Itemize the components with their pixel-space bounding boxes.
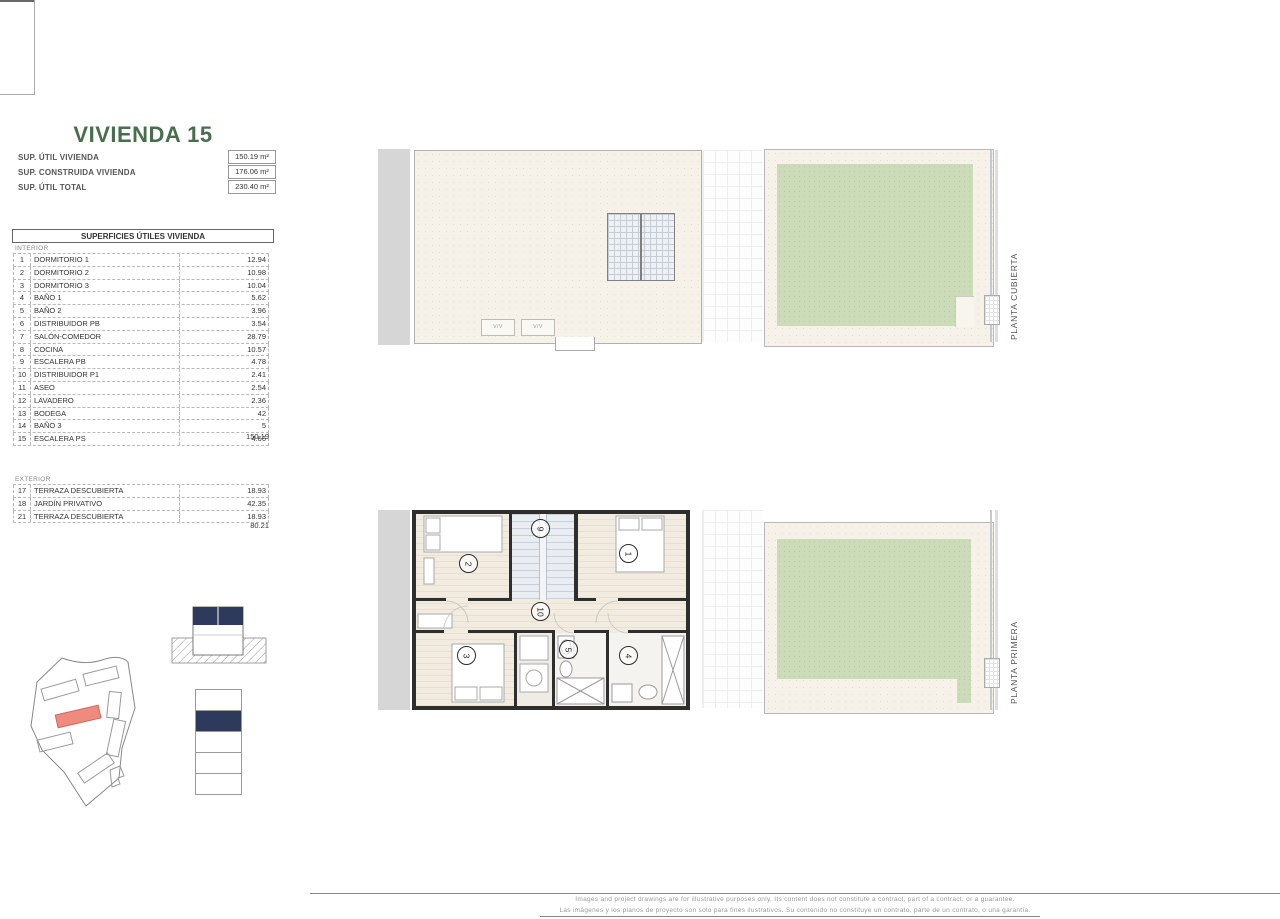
table-cell: 13 xyxy=(14,408,31,420)
table-row: 17TERRAZA DESCUBIERTA18.93 xyxy=(13,485,269,498)
neighbour-strip xyxy=(378,510,410,710)
table-cell: 2 xyxy=(14,267,31,279)
wardrobe xyxy=(424,558,434,584)
table-cell: 28.79 xyxy=(179,331,268,343)
table-row: 1DORMITORIO 112.94 xyxy=(13,254,269,267)
table-cell: 12.94 xyxy=(179,254,268,266)
garden-area xyxy=(764,149,994,347)
table-cell: 14 xyxy=(14,420,31,432)
roof-notch xyxy=(555,337,595,351)
table-row: 5BAÑO 23.96 xyxy=(13,305,269,318)
table-cell: BODEGA xyxy=(31,408,179,420)
table-cell: BAÑO 2 xyxy=(31,305,179,317)
room-circle-bath2: 5 xyxy=(559,640,578,659)
washer xyxy=(520,664,548,692)
table-cell: 5.62 xyxy=(179,292,268,304)
neighbour-strip xyxy=(378,149,410,345)
summary-label-util-total: SUP. ÚTIL TOTAL xyxy=(18,183,87,192)
table-cell: DORMITORIO 3 xyxy=(31,280,179,292)
table-row: 11ASEO2.54 xyxy=(13,382,269,395)
table-cell: BAÑO 1 xyxy=(31,292,179,304)
summary-value-util-total: 230.40 m² xyxy=(228,180,276,194)
boundary-detail xyxy=(984,295,1000,325)
table-cell: 17 xyxy=(14,485,31,497)
table-cell: LAVADERO xyxy=(31,395,179,407)
room-circle-dorm2: 2 xyxy=(459,554,478,573)
summary-value-construida: 176.06 m² xyxy=(228,165,276,179)
site-location-plan xyxy=(22,650,140,812)
exterior-section-label: EXTERIOR xyxy=(15,476,51,483)
table-row: 6DISTRIBUIDOR PB3.54 xyxy=(13,318,269,331)
table-cell: ASEO xyxy=(31,382,179,394)
table-cell: 2.41 xyxy=(179,369,268,381)
page-title: VIVIENDA 15 xyxy=(12,122,274,148)
table-cell: 5 xyxy=(14,305,31,317)
garden-lawn xyxy=(777,539,971,679)
corner-mark xyxy=(0,0,35,2)
table-cell: 1 xyxy=(14,254,31,266)
garden-lawn-extension xyxy=(957,677,971,703)
table-cell: 3.96 xyxy=(179,305,268,317)
skylight-divider xyxy=(640,214,642,280)
vent-marker: V/V xyxy=(521,319,555,336)
level-cell xyxy=(195,689,242,711)
table-cell: DISTRIBUIDOR PB xyxy=(31,318,179,330)
summary-label-construida: SUP. CONSTRUIDA VIVIENDA xyxy=(18,168,136,177)
roof-plan: V/V V/V xyxy=(378,147,1006,347)
table-cell: 11 xyxy=(14,382,31,394)
plan-sheet: VIVIENDA 15 SUP. ÚTIL VIVIENDA 150.19 m²… xyxy=(0,0,1280,919)
table-row: 10DISTRIBUIDOR P12.41 xyxy=(13,369,269,382)
roof-surface: V/V V/V xyxy=(414,150,702,344)
vent-marker: V/V xyxy=(481,319,515,336)
table-cell: 4 xyxy=(14,292,31,304)
toilet-bath2 xyxy=(560,661,572,677)
table-cell: 12 xyxy=(14,395,31,407)
disclaimer-en: Images and project drawings are for illu… xyxy=(310,896,1280,903)
table-row: 13BODEGA42 xyxy=(13,408,269,421)
exterior-total: 80.21 xyxy=(13,521,271,530)
footer-rule-2 xyxy=(540,916,1040,917)
toilet-bath1 xyxy=(639,685,657,699)
table-cell: SALÓN-COMEDOR xyxy=(31,331,179,343)
skylight xyxy=(607,213,675,281)
table-cell: 18.93 xyxy=(179,485,268,497)
table-cell: 18 xyxy=(14,498,31,510)
shelf xyxy=(520,636,548,660)
table-row: 9ESCALERA PB4.78 xyxy=(13,356,269,369)
building-section-diagram xyxy=(150,598,275,668)
table-cell: 8 xyxy=(14,344,31,356)
first-floor-plan: 1 2 3 4 5 9 10 xyxy=(378,508,1006,713)
level-cell-active xyxy=(195,710,242,732)
table-row: 12LAVADERO2.36 xyxy=(13,395,269,408)
table-row: 3DORMITORIO 310.04 xyxy=(13,280,269,293)
table-cell: 10 xyxy=(14,369,31,381)
table-cell: 42 xyxy=(179,408,268,420)
boundary-detail xyxy=(984,658,1000,688)
room-circle-dorm1: 1 xyxy=(619,544,638,563)
terrace-paving xyxy=(702,150,763,342)
exterior-areas-table: 17TERRAZA DESCUBIERTA18.9318JARDÍN PRIVA… xyxy=(13,484,269,523)
interior-section-label: INTERIOR xyxy=(15,245,48,252)
table-cell: 10.04 xyxy=(179,280,268,292)
terrace-paving xyxy=(702,510,763,708)
roof-plan-label: PLANTA CUBIERTA xyxy=(1009,253,1019,340)
furniture-layer xyxy=(416,514,686,706)
table-cell: 3 xyxy=(14,280,31,292)
table-row: 7SALÓN-COMEDOR28.79 xyxy=(13,331,269,344)
first-floor-plan-label: PLANTA PRIMERA xyxy=(1009,621,1019,704)
table-cell: DORMITORIO 1 xyxy=(31,254,179,266)
table-row: 4BAÑO 15.62 xyxy=(13,292,269,305)
table-cell: 7 xyxy=(14,331,31,343)
room-circle-hall: 10 xyxy=(531,602,550,621)
table-cell: 4.78 xyxy=(179,356,268,368)
table-cell: JARDÍN PRIVATIVO xyxy=(31,498,179,510)
summary-value-util-vivienda: 150.19 m² xyxy=(228,150,276,164)
table-cell: BAÑO 3 xyxy=(31,420,179,432)
table-cell: 2.36 xyxy=(179,395,268,407)
level-cell xyxy=(195,752,242,774)
table-row: 8COCINA10.57 xyxy=(13,344,269,357)
disclaimer-es: Las imágenes y los planos de proyecto so… xyxy=(310,907,1280,914)
footer-rule xyxy=(310,893,1280,894)
table-cell: DORMITORIO 2 xyxy=(31,267,179,279)
table-cell: DISTRIBUIDOR P1 xyxy=(31,369,179,381)
level-stack-diagram xyxy=(195,690,242,795)
garden-lawn xyxy=(777,164,973,326)
table-cell: 3.54 xyxy=(179,318,268,330)
table-row: 18JARDÍN PRIVATIVO42.35 xyxy=(13,498,269,511)
table-cell: 6 xyxy=(14,318,31,330)
garden-area xyxy=(764,522,994,714)
dresser xyxy=(418,614,452,628)
room-circle-stair: 9 xyxy=(531,519,550,538)
interior-areas-table: 1DORMITORIO 112.942DORMITORIO 210.983DOR… xyxy=(13,253,269,446)
table-cell: COCINA xyxy=(31,344,179,356)
level-cell xyxy=(195,731,242,753)
table-cell: 42.35 xyxy=(179,498,268,510)
table-cell: 9 xyxy=(14,356,31,368)
table-cell: 5 xyxy=(179,420,268,432)
sink-bath1 xyxy=(612,684,632,702)
room-circle-bath1: 4 xyxy=(619,646,638,665)
summary-label-util-vivienda: SUP. ÚTIL VIVIENDA xyxy=(18,153,99,162)
dwelling-outline: 1 2 3 4 5 9 10 xyxy=(412,510,690,710)
table-cell: 10.98 xyxy=(179,267,268,279)
table-cell: ESCALERA PB xyxy=(31,356,179,368)
garden-notch xyxy=(955,296,974,327)
corner-mark xyxy=(0,94,35,95)
interior-total: 150.19 xyxy=(13,432,271,441)
level-cell xyxy=(195,773,242,795)
table-cell: 2.54 xyxy=(179,382,268,394)
room-circle-dorm3: 3 xyxy=(457,646,476,665)
areas-table-header: SUPERFICIES ÚTILES VIVIENDA xyxy=(12,229,274,243)
corner-mark xyxy=(34,0,35,95)
table-cell: 10.57 xyxy=(179,344,268,356)
table-cell: TERRAZA DESCUBIERTA xyxy=(31,485,179,497)
table-row: 2DORMITORIO 210.98 xyxy=(13,267,269,280)
